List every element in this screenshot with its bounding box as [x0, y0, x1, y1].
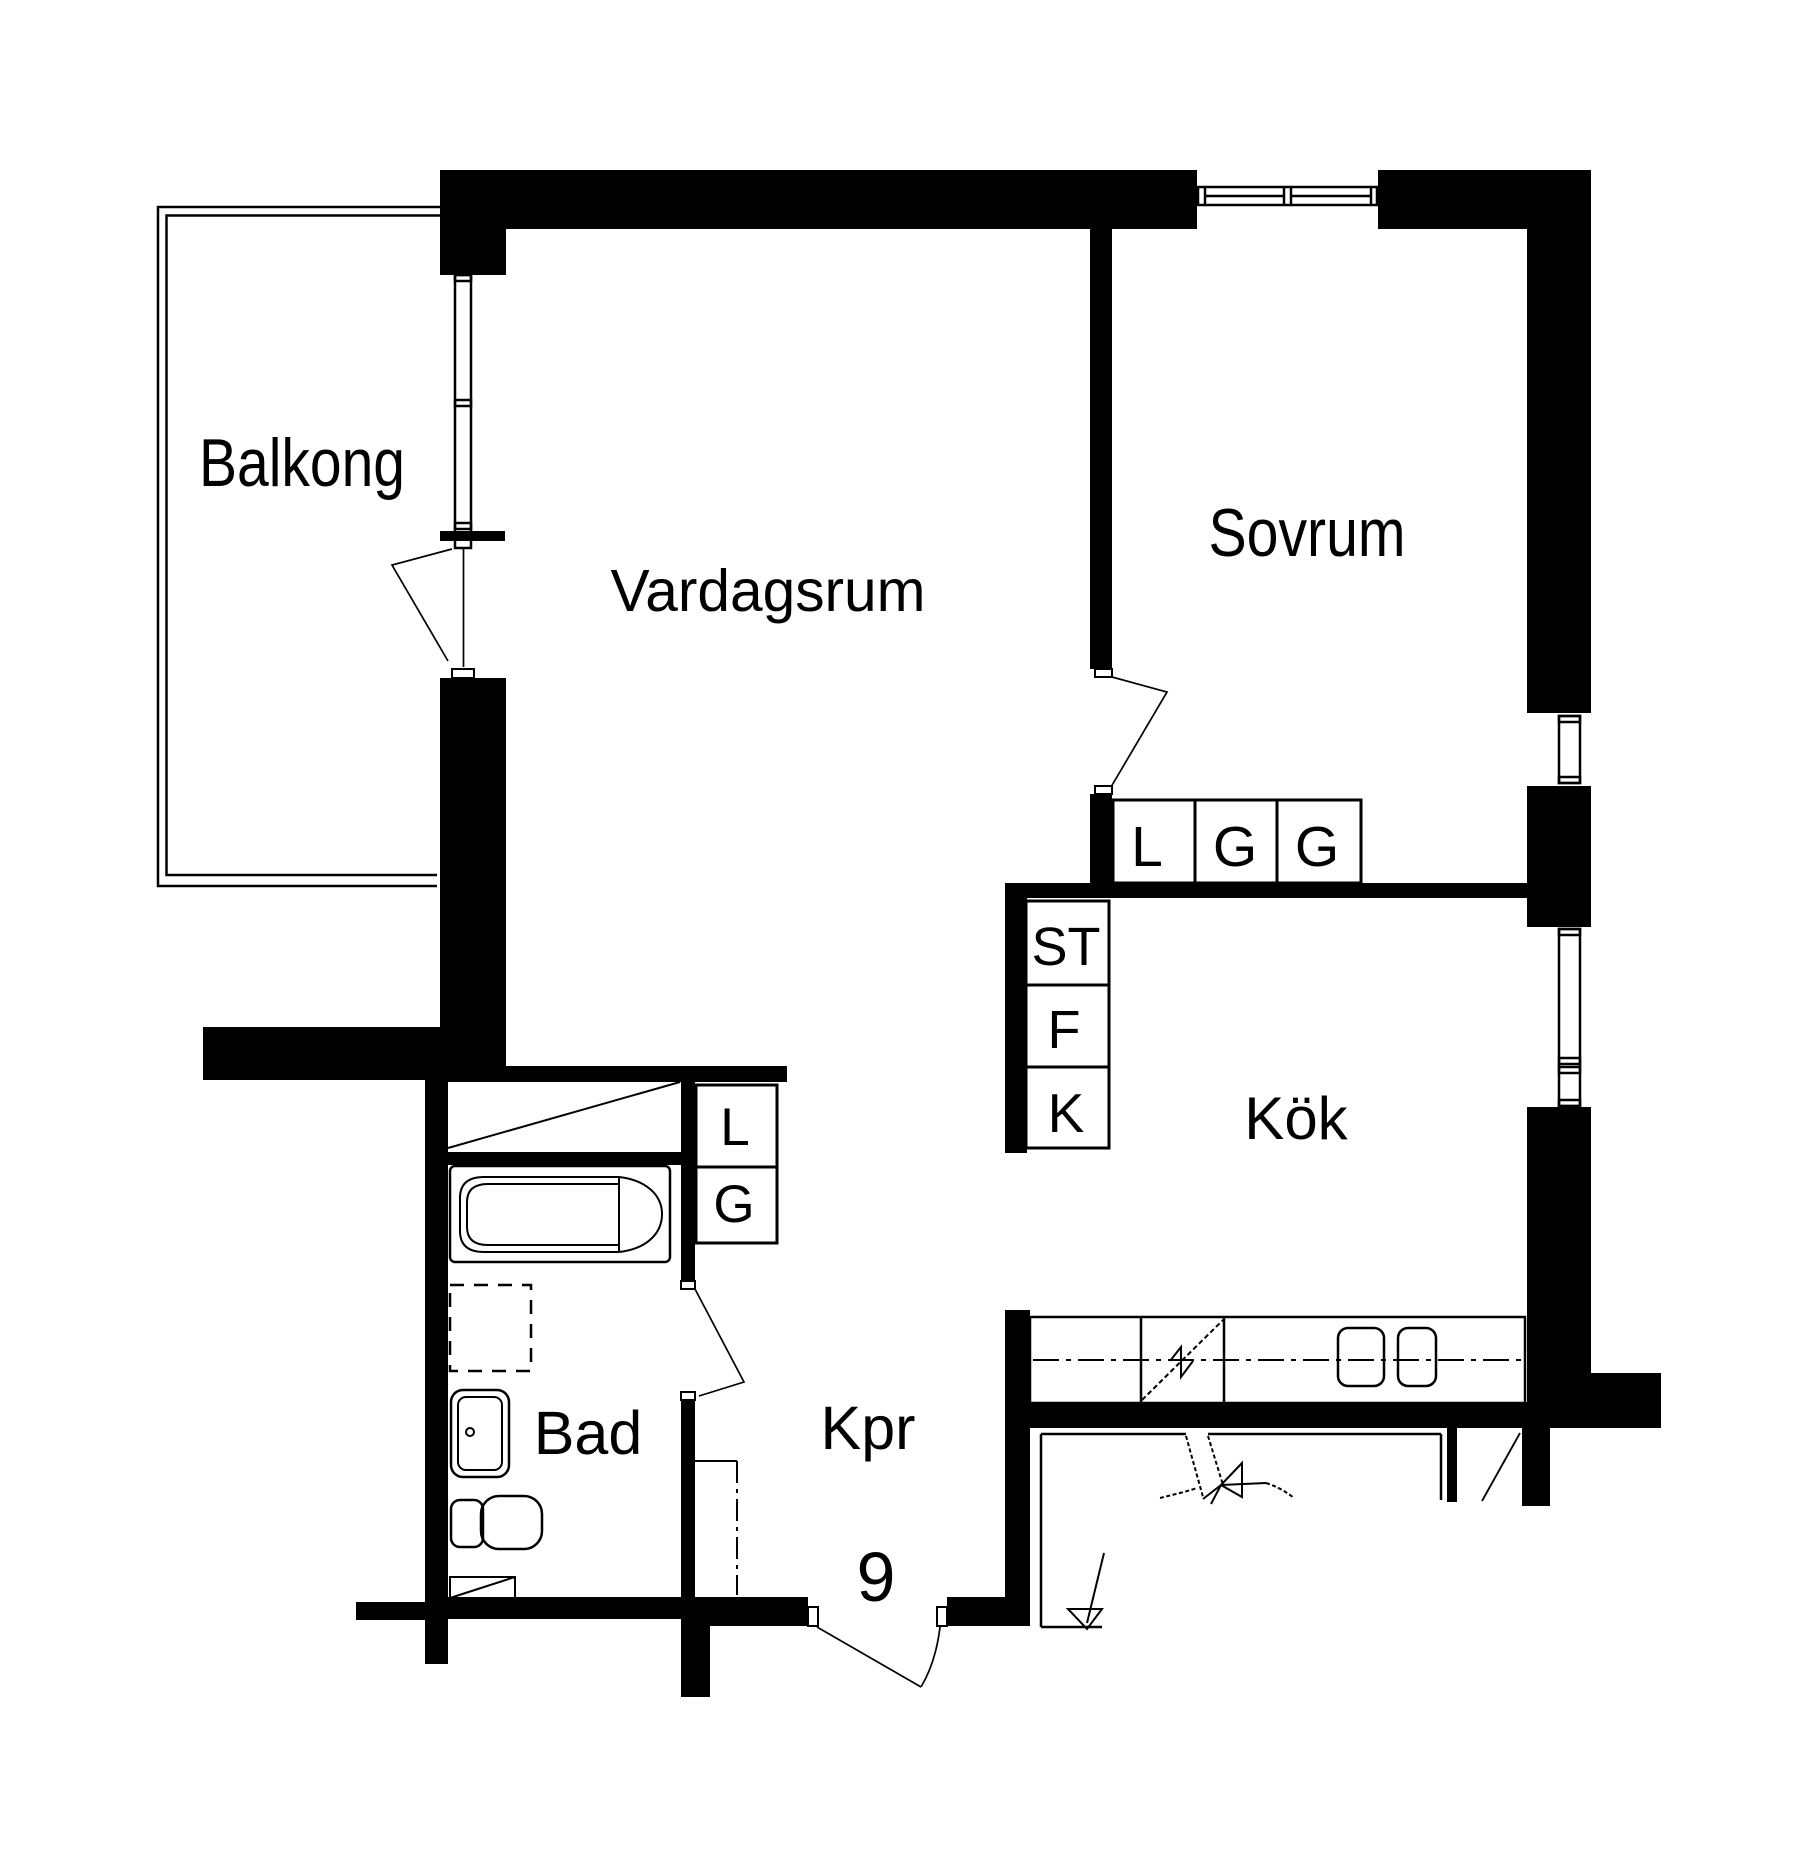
svg-text:F: F [1048, 1000, 1081, 1060]
svg-text:Balkong: Balkong [199, 425, 405, 501]
svg-text:L: L [720, 1098, 749, 1157]
svg-text:Kök: Kök [1244, 1085, 1348, 1152]
svg-text:Sovrum: Sovrum [1209, 495, 1406, 571]
svg-text:9: 9 [857, 1538, 896, 1616]
svg-text:K: K [1048, 1082, 1085, 1144]
svg-text:G: G [1295, 815, 1339, 879]
svg-text:Kpr: Kpr [821, 1394, 916, 1462]
svg-text:G: G [713, 1175, 754, 1234]
svg-text:Bad: Bad [534, 1399, 643, 1467]
svg-text:ST: ST [1031, 917, 1100, 977]
svg-text:L: L [1131, 815, 1163, 879]
svg-text:G: G [1213, 815, 1257, 879]
svg-text:Vardagsrum: Vardagsrum [611, 558, 926, 624]
